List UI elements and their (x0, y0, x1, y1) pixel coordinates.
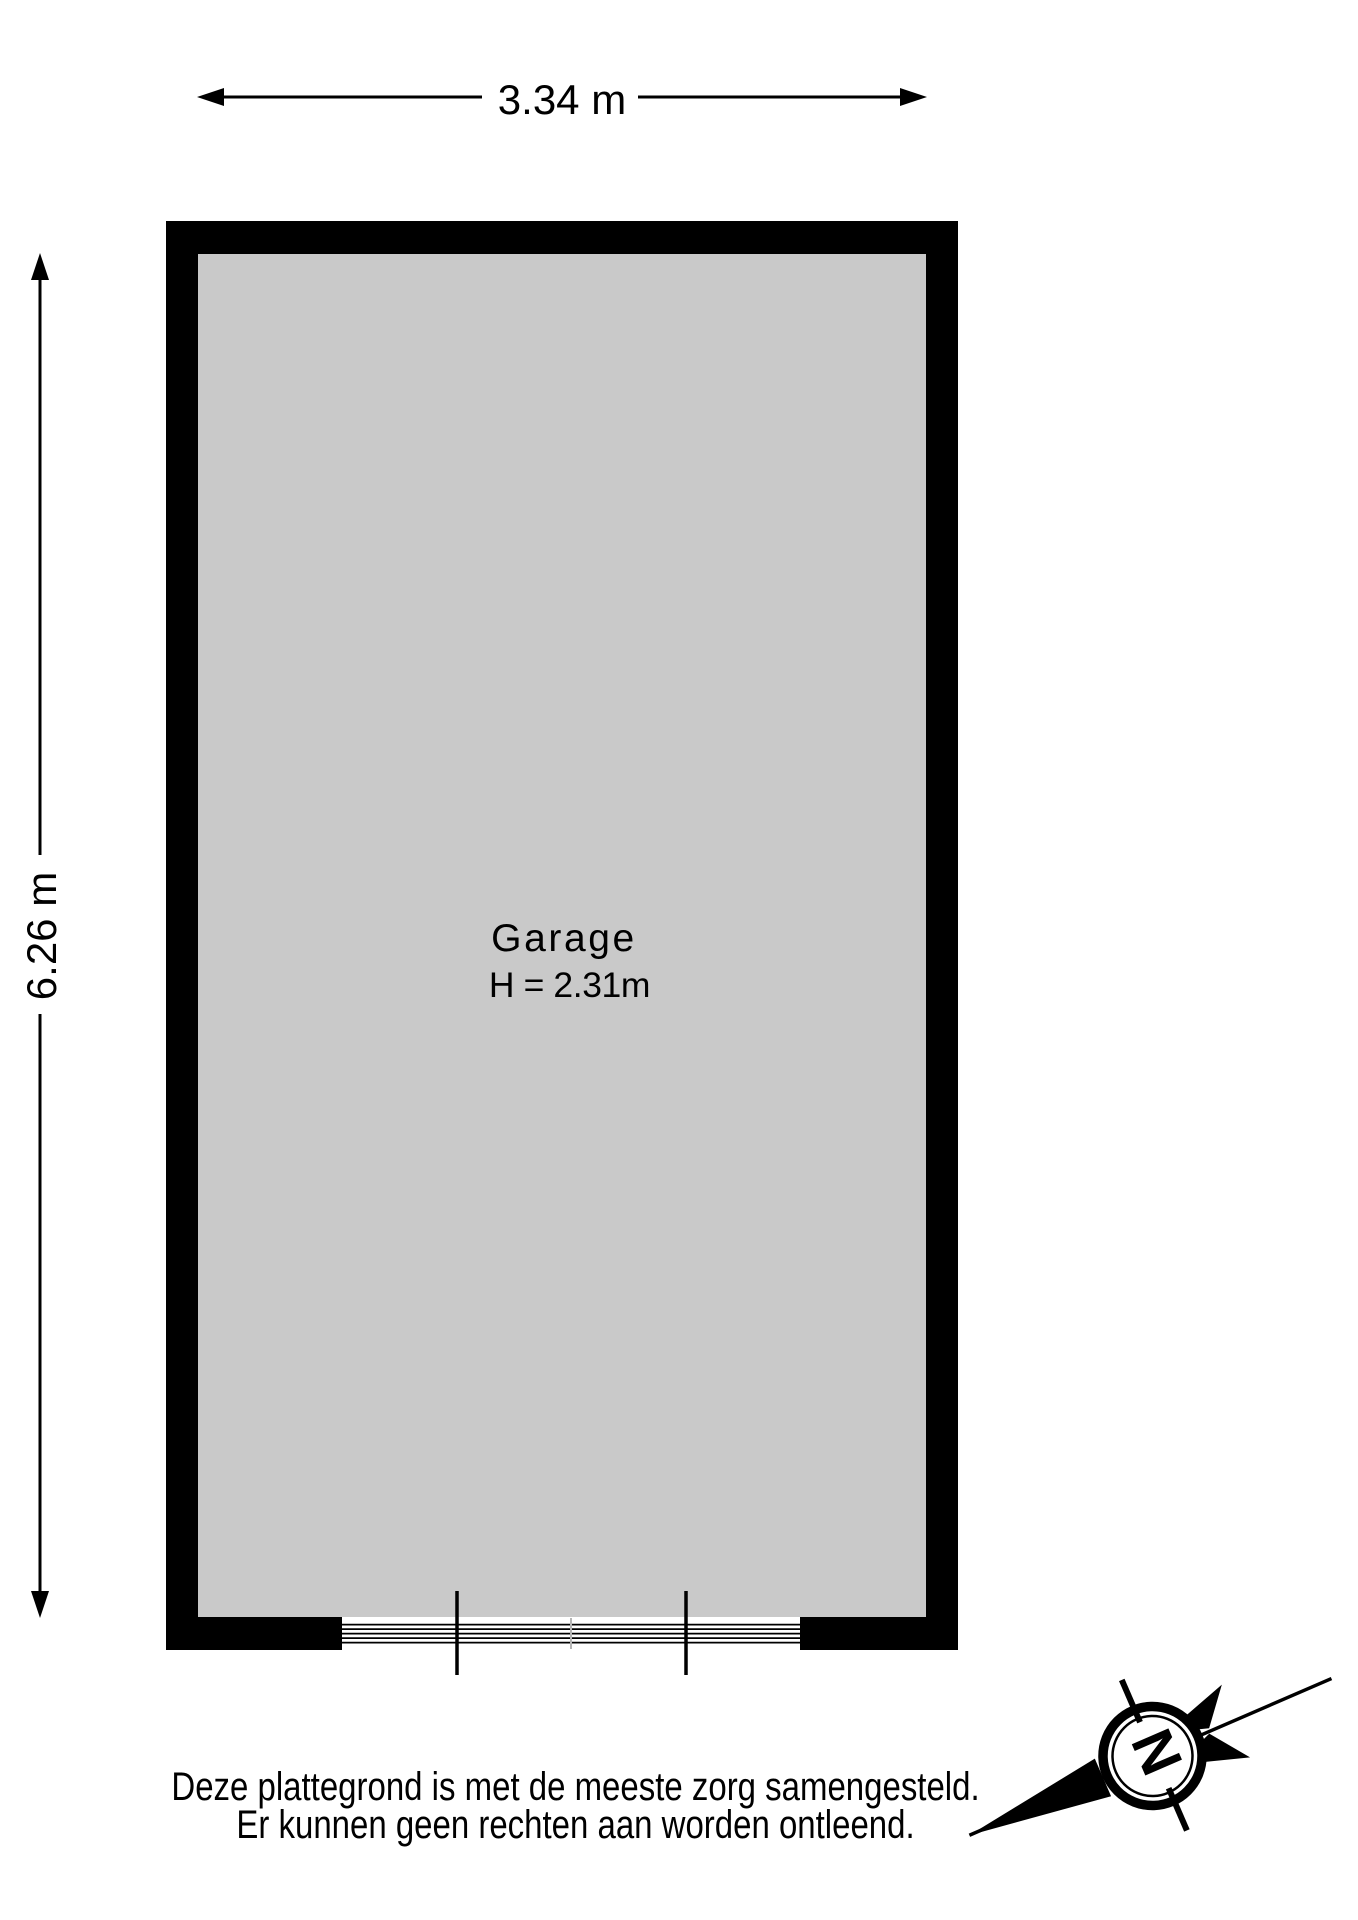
svg-text:3.34 m: 3.34 m (498, 76, 626, 123)
svg-text:Er kunnen geen rechten aan wor: Er kunnen geen rechten aan worden ontlee… (236, 1802, 914, 1847)
svg-text:Garage: Garage (491, 917, 637, 960)
svg-text:6.26 m: 6.26 m (18, 872, 65, 1000)
svg-text:H = 2.31m: H = 2.31m (489, 965, 650, 1005)
